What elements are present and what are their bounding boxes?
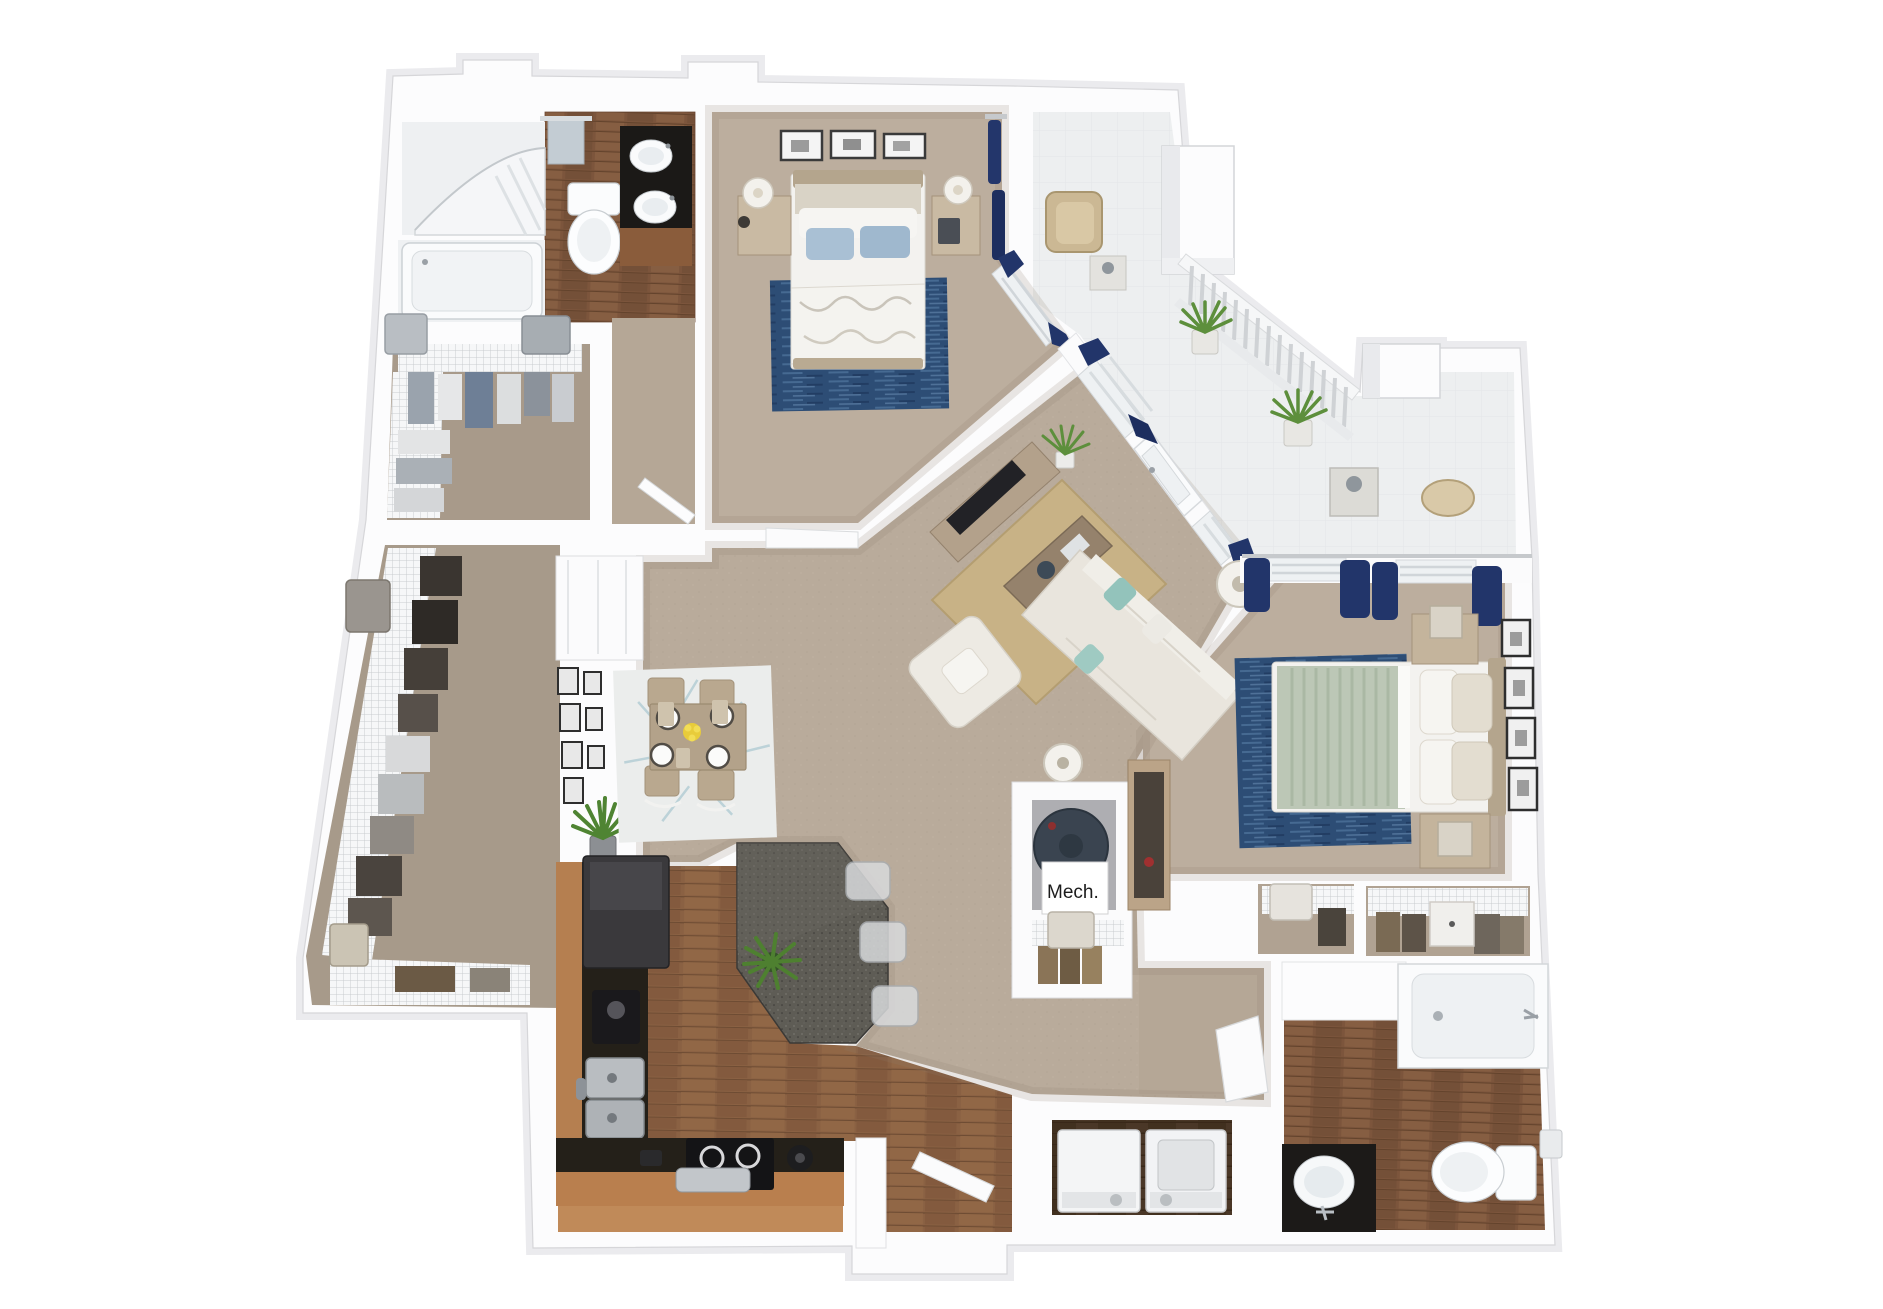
svg-text:Mech.: Mech. xyxy=(1047,882,1099,903)
